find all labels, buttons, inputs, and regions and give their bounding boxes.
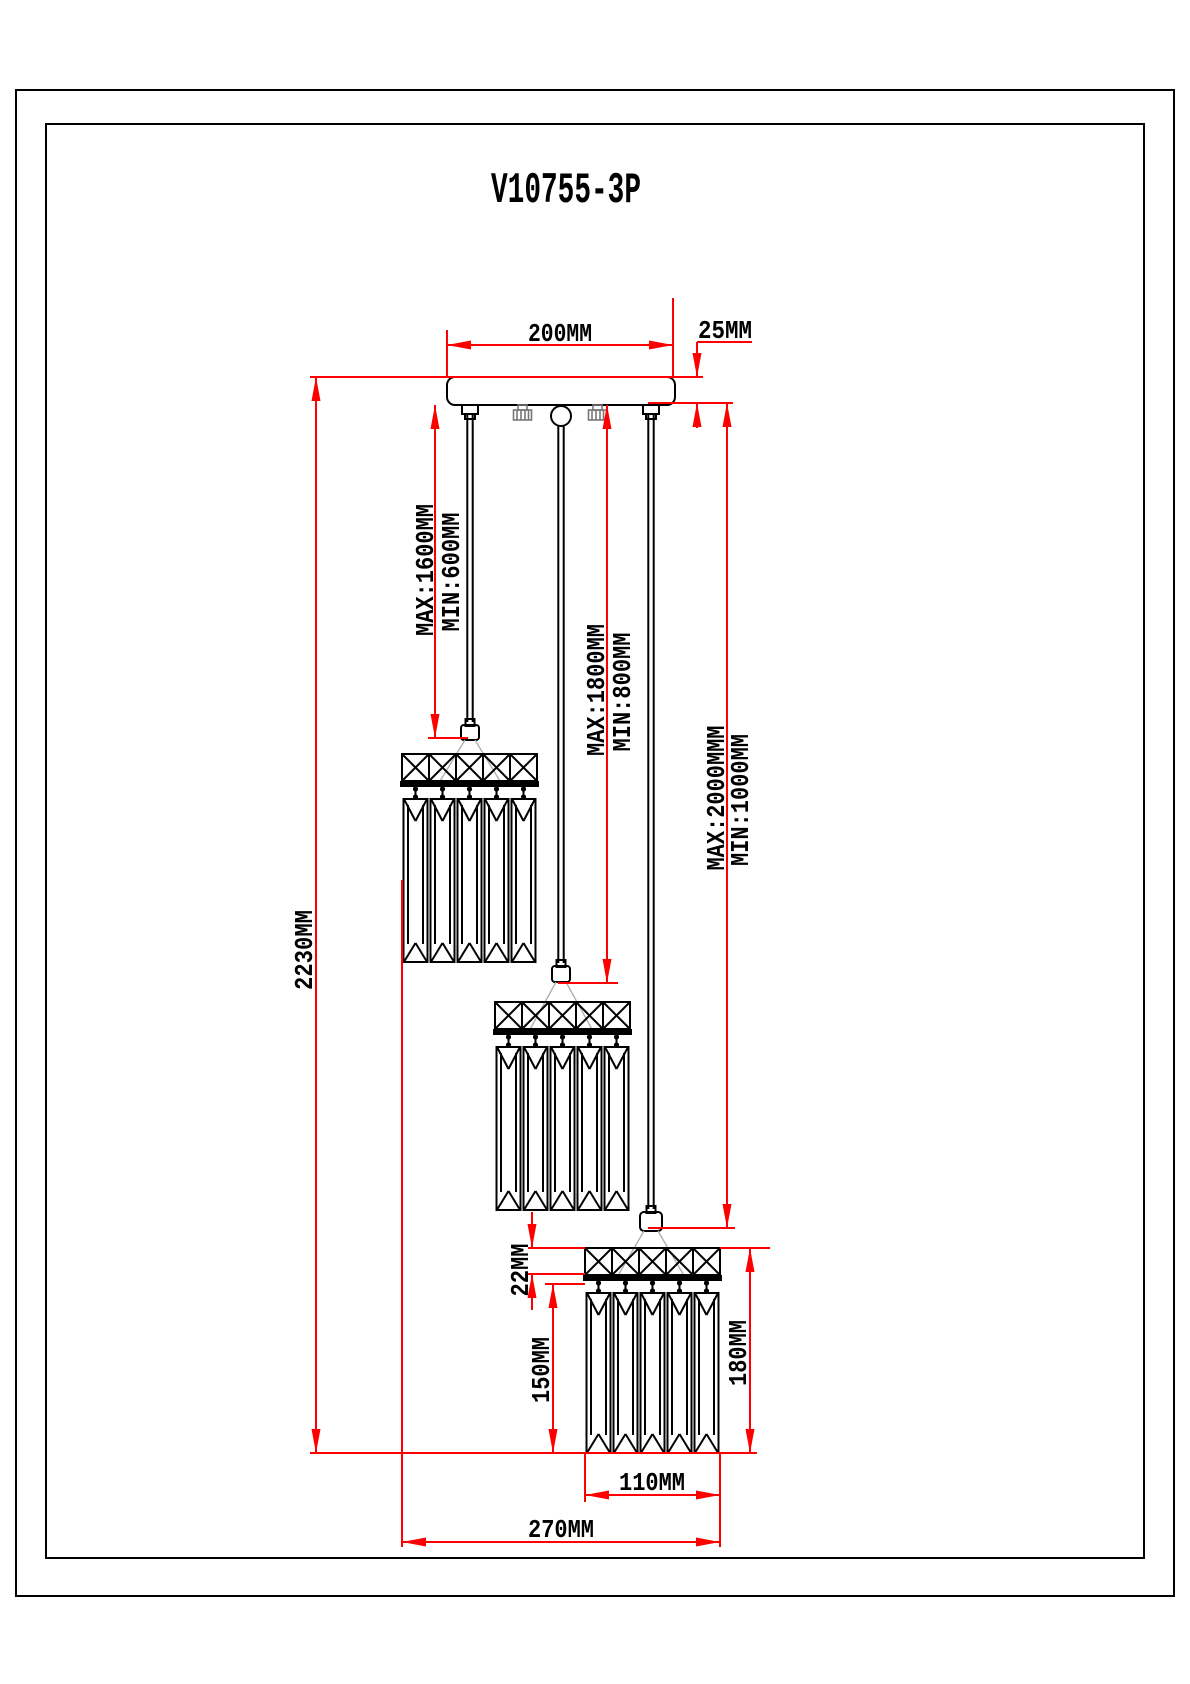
spread-width-label: 270MM [528, 1515, 594, 1545]
band-height-label: 22MM [506, 1244, 536, 1297]
dimension-arrowhead [402, 1538, 426, 1547]
dimension-arrowhead [312, 1429, 321, 1453]
pendant-lamp-technical-drawing: V10755-3P [0, 0, 1190, 1684]
cord-grip-right [643, 405, 659, 419]
dimension-arrowhead [431, 714, 440, 738]
dimension-arrowhead [723, 403, 732, 427]
dimension-arrowhead [649, 341, 673, 350]
dimension-arrowhead [723, 1204, 732, 1228]
cord2-min-label: MIN:800MM [608, 633, 638, 752]
socket-1 [437, 719, 503, 786]
dimension-arrowhead [585, 1491, 609, 1500]
cord-ball-center [551, 406, 571, 426]
suspension-cords [467, 414, 653, 1209]
canopy-thickness-label: 25MM [698, 316, 752, 346]
dimension-arrowhead [696, 1538, 720, 1547]
dimension-arrowhead [746, 1429, 755, 1453]
canopy-plate [447, 377, 675, 405]
shade-ring [493, 1029, 632, 1035]
dimension-arrowhead [549, 1429, 558, 1453]
shade-width-label: 110MM [619, 1468, 685, 1498]
shade-height-label: 180MM [724, 1320, 754, 1386]
dimension-arrowhead [312, 377, 321, 401]
dimension-arrowhead [603, 959, 612, 983]
pendant-shade-2 [493, 1002, 632, 1210]
pendant-shade-3 [583, 1248, 722, 1453]
dimension-arrowhead [549, 1284, 558, 1308]
dimension-arrowhead [696, 1491, 720, 1500]
shade-ring [583, 1275, 722, 1281]
overall-height-label: 2230MM [290, 910, 320, 990]
cord3-min-label: MIN:1000MM [726, 734, 756, 866]
socket-3 [616, 1206, 686, 1279]
crystal-shades [400, 754, 722, 1453]
dimension-arrowhead [693, 403, 702, 427]
cord1-min-label: MIN:600MM [437, 513, 467, 632]
model-number-title: V10755-3P [491, 166, 641, 216]
pendant-shade-1 [400, 754, 539, 962]
ceiling-canopy [447, 377, 675, 426]
canopy-width-label: 200MM [528, 319, 592, 349]
knurled-screw-left [514, 405, 532, 420]
inner-border [46, 124, 1144, 1558]
dimension-arrowhead [746, 1248, 755, 1272]
prism-length-label: 150MM [527, 1337, 557, 1403]
shade-ring [400, 781, 539, 787]
knurled-screw-right [589, 405, 607, 420]
drawing-frame [16, 90, 1174, 1596]
drawing-page: V10755-3P [0, 0, 1190, 1684]
dimension-arrowhead [431, 405, 440, 429]
outer-border [16, 90, 1174, 1596]
cord-grip-left [462, 405, 478, 419]
dimension-arrowhead [693, 353, 702, 377]
dimension-arrowhead [447, 341, 471, 350]
